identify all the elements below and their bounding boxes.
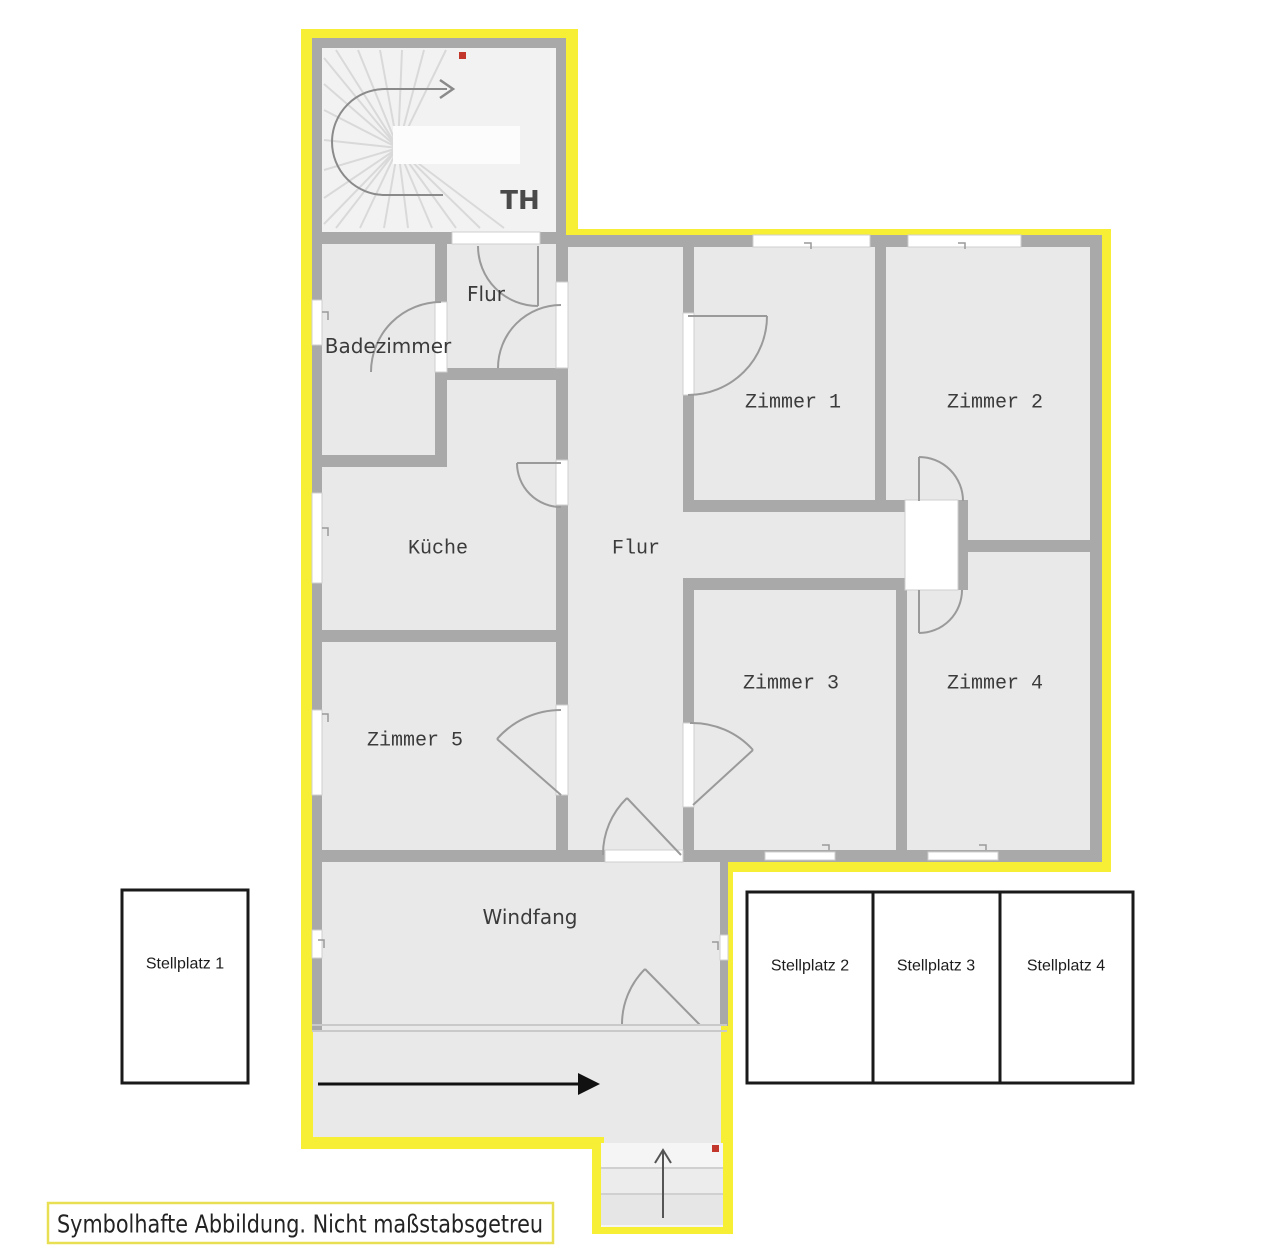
parking-label-4: Stellplatz 4 <box>1027 958 1105 975</box>
room-label-zimmer1: Zimmer 1 <box>745 392 841 415</box>
room-label-zimmer2: Zimmer 2 <box>947 392 1043 415</box>
parking-label-3: Stellplatz 3 <box>897 958 975 975</box>
room-label-zimmer3: Zimmer 3 <box>743 673 839 696</box>
smoke-detector-dot-2 <box>712 1145 719 1152</box>
smoke-detector-dot <box>459 52 466 59</box>
stair-landing <box>393 126 520 164</box>
room-label-flur: Flur <box>612 538 660 561</box>
parking-space-1: Stellplatz 1 <box>122 890 248 1083</box>
room-label-windfang: Windfang <box>483 905 578 929</box>
floor-plan: TH Flur Badezimmer Küche Flur Zimmer 1 Z… <box>0 0 1280 1249</box>
exterior-steps <box>601 1143 723 1227</box>
parking-label-2: Stellplatz 2 <box>771 958 849 975</box>
room-label-zimmer5: Zimmer 5 <box>367 730 463 753</box>
parking-spaces-2-4: Stellplatz 2 Stellplatz 3 Stellplatz 4 <box>747 892 1133 1083</box>
parking-label-1: Stellplatz 1 <box>146 956 224 973</box>
room-label-zimmer4: Zimmer 4 <box>947 673 1043 696</box>
room-label-kueche: Küche <box>408 538 468 561</box>
caption-text: Symbolhafte Abbildung. Nicht maßstabsget… <box>57 1210 543 1239</box>
floor-plan-page: TH Flur Badezimmer Küche Flur Zimmer 1 Z… <box>0 0 1280 1249</box>
room-label-flur-top: Flur <box>467 282 506 306</box>
room-label-badezimmer: Badezimmer <box>325 334 452 358</box>
room-label-th: TH <box>500 186 540 216</box>
caption-box: Symbolhafte Abbildung. Nicht maßstabsget… <box>48 1203 553 1243</box>
